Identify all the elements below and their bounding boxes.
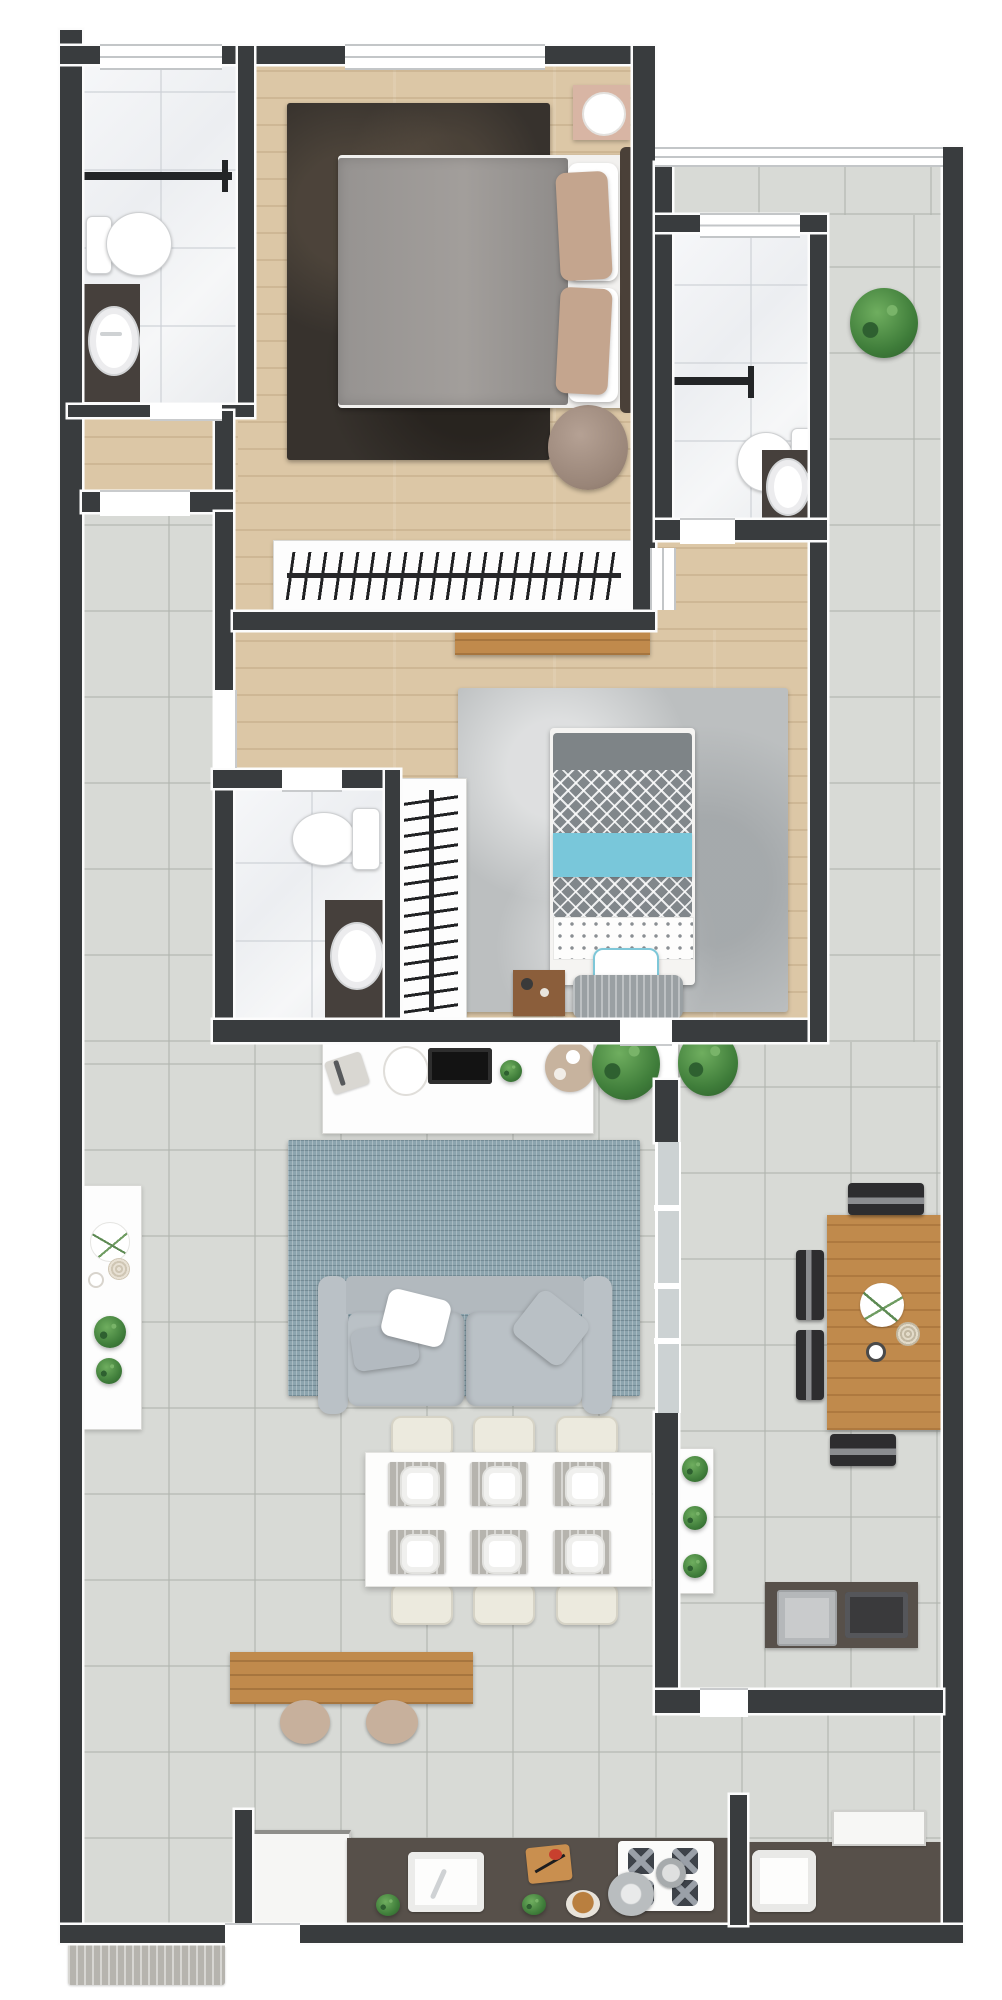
dining-chair <box>391 1583 453 1625</box>
plate <box>400 1466 440 1506</box>
wall-bath2-right <box>385 770 400 1042</box>
ensuite-window <box>700 213 800 238</box>
hall-to-bedroom2-door <box>213 690 237 768</box>
pot-with-lid <box>608 1872 654 1916</box>
dining-chair <box>473 1583 535 1625</box>
grill-appliance <box>845 1592 908 1638</box>
wall-glass-post-bottom <box>655 1413 678 1690</box>
bedroom2-living-door <box>620 1018 672 1046</box>
tomato-icon <box>549 1849 562 1860</box>
tv <box>428 1048 492 1084</box>
nightstand-tray <box>582 92 626 136</box>
wall-bedroom2-bottom <box>213 1020 827 1042</box>
wall-shelf <box>455 628 650 655</box>
floor-plan <box>0 0 1002 2000</box>
wall-outer-bottom <box>60 1925 963 1943</box>
utility-sink <box>752 1850 816 1912</box>
cup-icon <box>566 1050 580 1064</box>
shelf-plant <box>683 1506 707 1530</box>
master-bath-door <box>150 403 222 421</box>
balcony-top-floor <box>672 163 943 215</box>
wardrobe-rod-icon <box>287 573 621 578</box>
terrace-plate <box>860 1283 904 1327</box>
dining-chair <box>556 1583 618 1625</box>
plate <box>482 1534 522 1574</box>
console-plant <box>94 1316 126 1348</box>
entry-door <box>225 1923 300 1947</box>
steel-sink <box>777 1590 837 1646</box>
hallway-floor <box>82 512 233 1042</box>
cup-icon <box>554 1068 566 1080</box>
plate <box>400 1534 440 1574</box>
wall-master-right <box>633 46 655 630</box>
decor-tray <box>383 1046 429 1096</box>
wall-laundry-divider <box>730 1795 747 1925</box>
terrace-chair <box>796 1330 824 1400</box>
wall-terrace-bottom <box>655 1690 943 1713</box>
round-sink <box>88 306 140 376</box>
shower-handle-icon <box>222 160 228 192</box>
console-plant <box>96 1358 122 1384</box>
bed2-side-tray <box>513 970 565 1016</box>
terrace-chair <box>796 1250 824 1320</box>
glass-frame-icon <box>654 1283 679 1289</box>
ensuite-door <box>680 518 735 544</box>
master-duvet <box>338 158 568 405</box>
glass-frame-icon <box>654 1205 679 1211</box>
round-sink <box>330 922 384 990</box>
sofa-armrest <box>582 1276 612 1414</box>
toilet-bowl <box>292 812 356 866</box>
balcony-plant <box>850 288 918 358</box>
counter-plant <box>376 1894 400 1916</box>
wardrobe-rod-icon <box>429 790 434 1012</box>
faucet-icon <box>100 332 122 336</box>
kitchen-sink <box>408 1852 484 1912</box>
plate <box>565 1466 605 1506</box>
terrace-service-door <box>700 1688 748 1717</box>
washer <box>832 1810 926 1846</box>
stool <box>280 1700 330 1744</box>
wall-closet-bottom <box>233 612 655 630</box>
wall-glass-post-top <box>655 1080 678 1142</box>
stool <box>366 1700 418 1744</box>
wall-bedroom2-right <box>810 215 827 1042</box>
shower-divider <box>82 172 232 180</box>
toilet-bowl <box>106 212 172 276</box>
wood-bench <box>230 1652 473 1704</box>
terrace-chair <box>830 1434 896 1466</box>
terrace-rail-window <box>655 147 943 167</box>
master-bath-window <box>100 44 222 70</box>
decor-pinecone <box>896 1322 920 1346</box>
wall-outer-left <box>60 30 82 1943</box>
terrace-chair <box>848 1183 924 1215</box>
plate <box>482 1466 522 1506</box>
decor-pinecone <box>108 1258 130 1280</box>
plate <box>565 1534 605 1574</box>
decor-plate <box>90 1222 130 1262</box>
pillow <box>555 287 612 396</box>
wall-bath1-right <box>238 46 254 411</box>
bed2-pillow-band <box>553 733 692 773</box>
counter-plant <box>522 1894 546 1915</box>
bed2-blue-throw <box>553 833 692 877</box>
nook-side-window <box>650 548 676 610</box>
wall-outer-right <box>943 147 963 1943</box>
refrigerator <box>252 1830 351 1931</box>
shower-handle-icon <box>748 366 754 398</box>
pillow <box>555 171 613 282</box>
bed2-bench <box>573 975 683 1019</box>
decor-bowl <box>88 1272 104 1288</box>
pouf <box>548 405 628 490</box>
bedroom2-bath-door <box>282 768 342 792</box>
console-plant <box>500 1060 522 1082</box>
espresso-cup-icon <box>866 1342 886 1362</box>
shelf-plant <box>682 1456 708 1482</box>
master-window <box>345 44 545 70</box>
bedroom2-nook-floor <box>655 540 810 630</box>
tray-item-icon <box>521 978 533 990</box>
toilet-tank <box>352 808 380 870</box>
hall-to-master-door <box>100 490 190 516</box>
tray-item-icon <box>540 988 549 997</box>
fruit-bowl <box>566 1890 600 1918</box>
entry-doormat <box>68 1943 225 1985</box>
burner-icon <box>628 1848 654 1874</box>
glass-frame-icon <box>654 1338 679 1344</box>
saucepan <box>656 1858 686 1888</box>
shelf-plant <box>683 1554 707 1578</box>
sofa-armrest <box>318 1276 348 1414</box>
glass-partition <box>656 1142 681 1413</box>
shower-divider <box>672 377 750 385</box>
round-sink <box>766 458 810 516</box>
wall-kitchen-stub <box>235 1810 252 1925</box>
